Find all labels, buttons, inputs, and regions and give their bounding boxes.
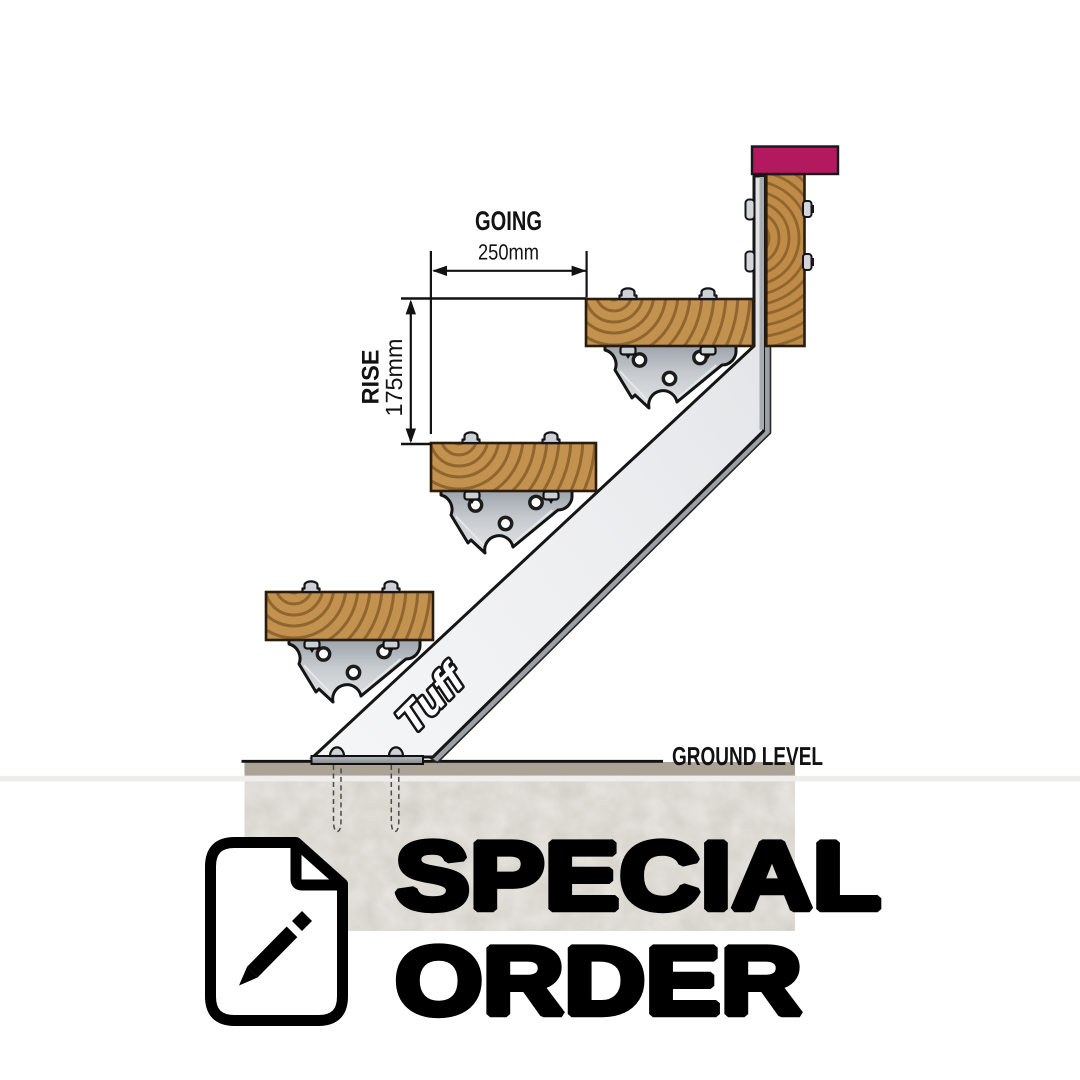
svg-text:GOING: GOING bbox=[475, 206, 542, 236]
svg-text:GROUND LEVEL: GROUND LEVEL bbox=[672, 741, 823, 771]
svg-text:175mm: 175mm bbox=[381, 339, 407, 417]
svg-text:250mm: 250mm bbox=[478, 240, 539, 265]
svg-text:SPECIAL: SPECIAL bbox=[395, 823, 881, 930]
svg-text:ORDER: ORDER bbox=[395, 928, 802, 1035]
